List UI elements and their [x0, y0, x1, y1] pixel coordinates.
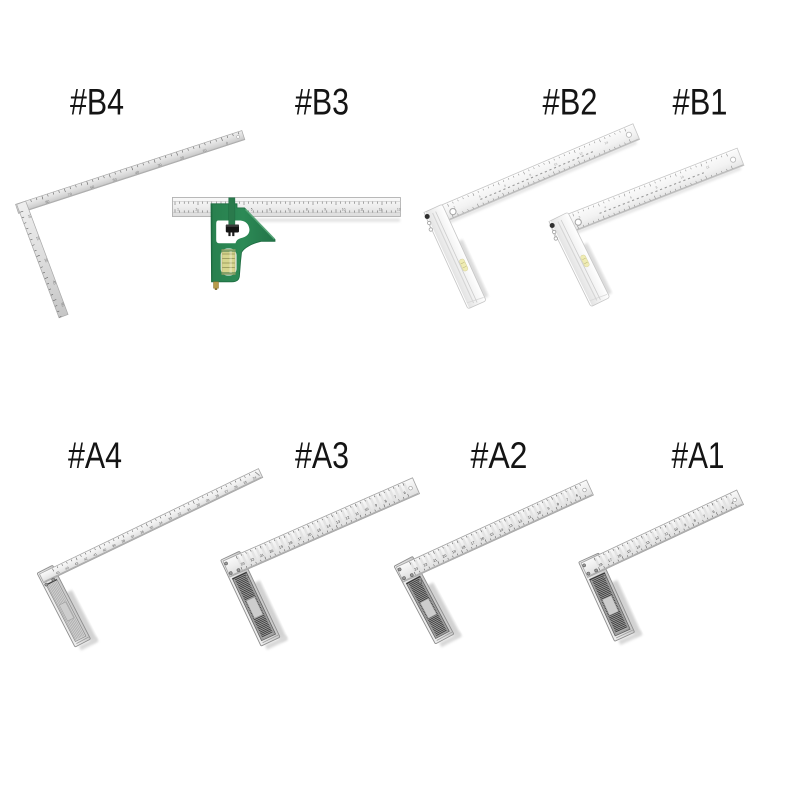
svg-text:#A4: #A4 [68, 435, 122, 476]
svg-text:#B1: #B1 [673, 82, 728, 123]
svg-text:10: 10 [342, 207, 346, 211]
svg-text:9: 9 [324, 207, 326, 211]
svg-text:11: 11 [360, 207, 364, 211]
svg-text:5: 5 [251, 207, 253, 211]
svg-text:2: 2 [196, 207, 198, 211]
svg-text:#A2: #A2 [471, 435, 528, 476]
svg-text:12: 12 [379, 207, 383, 211]
svg-text:#B3: #B3 [295, 82, 349, 123]
svg-text:1: 1 [177, 207, 179, 211]
svg-text:7: 7 [288, 207, 290, 211]
svg-text:#A3: #A3 [295, 435, 349, 476]
svg-text:13: 13 [397, 207, 401, 211]
svg-text:#B2: #B2 [543, 82, 598, 123]
svg-text:#A1: #A1 [672, 435, 725, 476]
svg-text:#B4: #B4 [70, 82, 124, 123]
svg-text:6: 6 [269, 207, 271, 211]
svg-text:8: 8 [306, 207, 308, 211]
